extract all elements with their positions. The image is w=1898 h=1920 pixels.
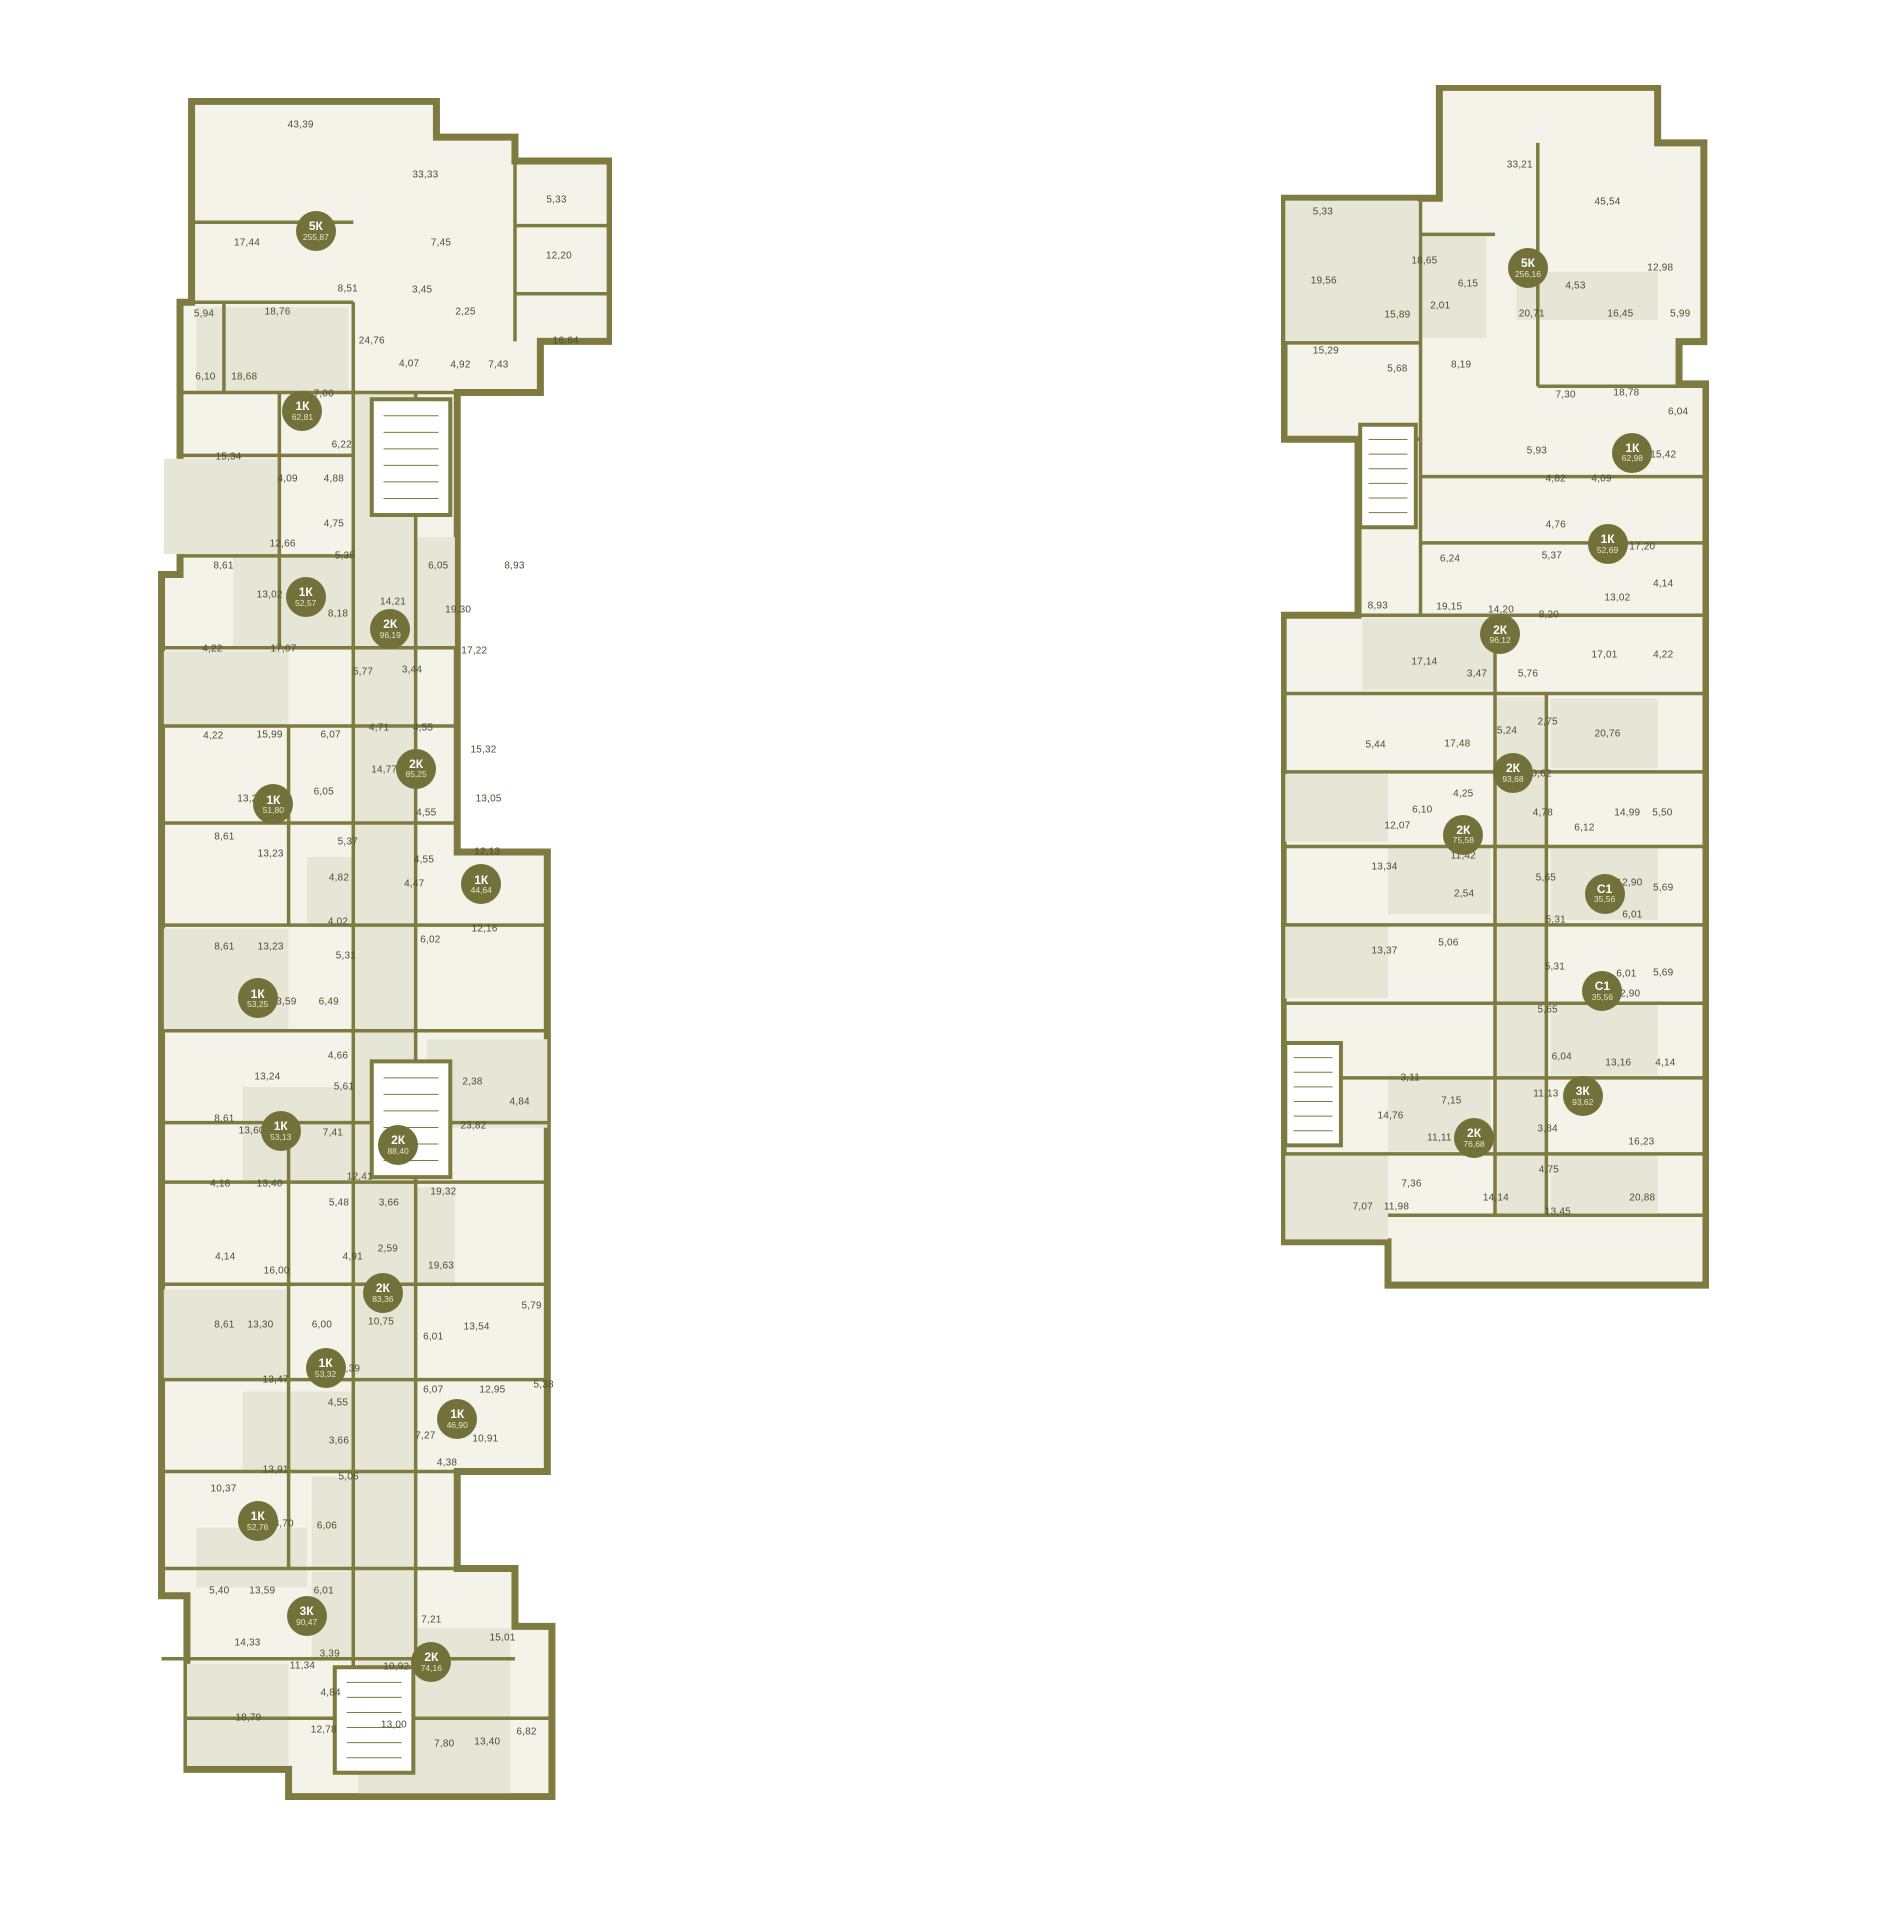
room-area-label: 15,01: [489, 1633, 515, 1644]
apartment-type: 1К: [474, 874, 488, 887]
apartment-area: 53,25: [247, 1000, 268, 1009]
room-area-label: 6,01: [314, 1585, 334, 1596]
room-tint: [1285, 925, 1388, 999]
room-area-label: 17,22: [461, 646, 487, 657]
room-area-label: 4,75: [324, 518, 344, 529]
apartment-badge: С135,56: [1582, 971, 1622, 1011]
apartment-area: 51,80: [263, 806, 284, 815]
room-area-label: 5,79: [521, 1301, 541, 1312]
room-area-label: 7,07: [1353, 1201, 1373, 1212]
room-area-label: 13,24: [254, 1071, 280, 1082]
room-area-label: 4,82: [329, 872, 349, 883]
room-area-label: 7,15: [1441, 1095, 1461, 1106]
apartment-badge: 1К53,13: [261, 1111, 301, 1151]
room-area-label: 18,76: [264, 307, 290, 318]
room-area-label: 3,47: [1467, 669, 1487, 680]
room-area-label: 6,07: [423, 1384, 443, 1395]
room-area-label: 5,40: [209, 1585, 229, 1596]
room-area-label: 16,00: [264, 1265, 290, 1276]
room-area-label: 13,30: [247, 1320, 273, 1331]
room-area-label: 11,98: [1384, 1201, 1409, 1212]
room-tint: [164, 651, 289, 726]
room-tint: [164, 1289, 289, 1378]
apartment-badge: 5К256,16: [1508, 248, 1548, 288]
room-area-label: 18,65: [1411, 255, 1437, 266]
apartment-type: 2К: [409, 758, 423, 771]
room-area-label: 19,30: [445, 605, 471, 616]
room-area-label: 4,55: [413, 722, 433, 733]
room-area-label: 2,54: [1454, 888, 1474, 899]
apartment-type: 1К: [274, 1120, 288, 1133]
room-area-label: 4,02: [328, 916, 348, 927]
apartment-badge: 1К46,90: [437, 1399, 477, 1439]
room-area-label: 20,88: [1629, 1193, 1655, 1204]
room-area-label: 17,07: [271, 644, 297, 655]
room-area-label: 8,61: [214, 1114, 234, 1125]
room-area-label: 19,15: [1436, 601, 1462, 612]
apartment-type: 1К: [295, 400, 309, 413]
apartment-badge: 2К96,19: [370, 609, 410, 649]
room-area-label: 12,07: [1384, 821, 1410, 832]
room-area-label: 6,04: [1668, 406, 1688, 417]
room-area-label: 6,01: [1616, 969, 1636, 980]
apartment-type: 1К: [251, 988, 265, 1001]
apartment-type: 3К: [1576, 1085, 1590, 1098]
room-tint: [1551, 1003, 1658, 1075]
apartment-type: 1К: [1625, 442, 1639, 455]
room-area-label: 11,13: [1533, 1088, 1558, 1099]
room-area-label: 4,14: [1653, 578, 1673, 589]
room-area-label: 4,22: [202, 644, 222, 655]
apartment-area: 255,87: [303, 233, 329, 242]
apartment-badge: 2К75,58: [1443, 815, 1483, 855]
room-area-label: 4,55: [416, 807, 436, 818]
room-area-label: 17,20: [1629, 541, 1655, 552]
room-area-label: 4,14: [215, 1252, 235, 1263]
apartment-badge: 2К96,12: [1480, 614, 1520, 654]
apartment-area: 74,16: [421, 1664, 442, 1673]
room-area-label: 6,24: [1440, 553, 1460, 564]
apartment-type: 5К: [309, 220, 323, 233]
apartment-badge: 1К44,64: [461, 864, 501, 904]
apartment-area: 53,13: [270, 1133, 291, 1142]
room-area-label: 3,45: [412, 285, 432, 296]
room-area-label: 5,68: [1387, 364, 1407, 375]
room-area-label: 10,92: [383, 1662, 409, 1673]
room-area-label: 6,22: [332, 440, 352, 451]
room-area-label: 20,71: [1519, 308, 1545, 319]
apartment-area: 96,12: [1489, 636, 1510, 645]
room-area-label: 4,78: [1533, 807, 1553, 818]
apartment-type: 1К: [1601, 533, 1615, 546]
apartment-type: 1К: [319, 1357, 333, 1370]
apartment-badge: 2К76,68: [1454, 1118, 1494, 1158]
room-area-label: 11,11: [1427, 1133, 1452, 1144]
room-area-label: 3,44: [402, 664, 422, 675]
room-area-label: 13,02: [1604, 593, 1630, 604]
room-area-label: 3,66: [379, 1197, 399, 1208]
apartment-type: 3К: [300, 1605, 314, 1618]
room-area-label: 5,48: [329, 1197, 349, 1208]
apartment-area: 96,19: [380, 631, 401, 640]
room-area-label: 5,93: [1527, 446, 1547, 457]
apartment-badge: 1К62,98: [1612, 433, 1652, 473]
room-area-label: 7,36: [1401, 1178, 1421, 1189]
apartment-area: 85,25: [405, 770, 426, 779]
room-area-label: 4,88: [324, 474, 344, 485]
room-area-label: 5,31: [336, 950, 356, 961]
stair-core: [372, 399, 451, 515]
room-area-label: 14,14: [1483, 1193, 1509, 1204]
room-area-label: 6,10: [1412, 805, 1432, 816]
apartment-type: 2К: [1493, 624, 1507, 637]
room-area-label: 18,79: [235, 1713, 261, 1724]
apartment-badge: 2К93,68: [1493, 753, 1533, 793]
room-area-label: 4,84: [321, 1687, 341, 1698]
room-area-label: 5,69: [1653, 882, 1673, 893]
room-area-label: 5,33: [546, 195, 566, 206]
apartment-badge: 2К88,40: [378, 1125, 418, 1165]
room-area-label: 5,69: [1653, 968, 1673, 979]
room-area-label: 19,56: [1311, 276, 1337, 287]
room-area-label: 6,01: [423, 1332, 443, 1343]
room-area-label: 19,32: [430, 1187, 456, 1198]
room-area-label: 5,06: [1438, 937, 1458, 948]
room-area-label: 15,29: [1313, 346, 1339, 357]
room-area-label: 6,82: [516, 1726, 536, 1737]
apartment-area: 52,57: [295, 599, 316, 608]
apartment-type: 2К: [424, 1651, 438, 1664]
room-area-label: 8,19: [1451, 359, 1471, 370]
room-area-label: 4,25: [1453, 788, 1473, 799]
room-area-label: 5,31: [1545, 962, 1565, 973]
apartment-badge: 5К255,87: [296, 211, 336, 251]
room-area-label: 16,64: [553, 336, 579, 347]
apartment-type: 2К: [1467, 1127, 1481, 1140]
room-area-label: 5,38: [533, 1379, 553, 1390]
room-area-label: 10,37: [210, 1483, 236, 1494]
stair-core: [1285, 1043, 1341, 1145]
room-area-label: 13,47: [263, 1374, 289, 1385]
room-area-label: 8,51: [338, 283, 358, 294]
room-area-label: 4,09: [1591, 474, 1611, 485]
stair-core: [1360, 425, 1416, 527]
apartment-badge: 1К52,76: [238, 1501, 278, 1541]
apartment-area: 93,62: [1572, 1098, 1593, 1107]
room-area-label: 17,48: [1444, 739, 1470, 750]
room-area-label: 7,41: [323, 1127, 343, 1138]
room-area-label: 8,61: [214, 831, 234, 842]
room-tint: [1551, 1155, 1658, 1213]
room-area-label: 14,76: [1378, 1111, 1404, 1122]
apartment-area: 62,81: [292, 413, 313, 422]
room-tint: [1285, 774, 1388, 841]
room-area-label: 5,33: [1313, 206, 1333, 217]
room-area-label: 8,93: [504, 561, 524, 572]
room-area-label: 4,92: [450, 360, 470, 371]
room-area-label: 4,66: [328, 1051, 348, 1062]
room-area-label: 2,38: [462, 1076, 482, 1087]
room-area-label: 8,18: [328, 608, 348, 619]
room-area-label: 4,18: [210, 1178, 230, 1189]
room-area-label: 2,75: [1538, 717, 1558, 728]
room-area-label: 5,44: [1365, 740, 1385, 751]
room-area-label: 6,10: [195, 372, 215, 383]
apartment-type: 1К: [450, 1408, 464, 1421]
building-section-left: 43,3933,335,3317,447,4512,208,513,452,25…: [150, 98, 612, 1800]
apartment-badge: 1К52,57: [286, 577, 326, 617]
room-area-label: 5,65: [1536, 872, 1556, 883]
apartment-type: 1К: [299, 586, 313, 599]
room-area-label: 23,82: [460, 1121, 486, 1132]
room-area-label: 13,34: [1372, 862, 1398, 873]
apartment-type: 1К: [251, 1510, 265, 1523]
room-area-label: 8,61: [213, 561, 233, 572]
apartment-type: 2К: [1456, 824, 1470, 837]
room-area-label: 45,54: [1595, 196, 1621, 207]
room-area-label: 4,14: [1655, 1058, 1675, 1069]
room-tint: [307, 857, 413, 923]
apartment-type: С1: [1597, 883, 1612, 896]
apartment-badge: 1К53,25: [238, 978, 278, 1018]
room-area-label: 15,89: [1384, 310, 1410, 321]
room-area-label: 15,32: [471, 744, 497, 755]
room-area-label: 6,05: [428, 561, 448, 572]
room-area-label: 11,34: [290, 1660, 315, 1671]
room-tint: [1285, 1155, 1388, 1239]
room-area-label: 6,49: [319, 996, 339, 1007]
room-area-label: 6,02: [420, 935, 440, 946]
room-area-label: 5,65: [1538, 1005, 1558, 1016]
room-area-label: 17,01: [1592, 649, 1618, 660]
apartment-area: 76,68: [1463, 1140, 1484, 1149]
room-area-label: 8,93: [1368, 600, 1388, 611]
room-area-label: 3,11: [1400, 1072, 1420, 1083]
apartment-type: 1К: [266, 794, 280, 807]
room-area-label: 13,05: [476, 794, 502, 805]
room-area-label: 13,40: [474, 1737, 500, 1748]
apartment-area: 90,47: [296, 1618, 317, 1627]
room-area-label: 4,07: [399, 358, 419, 369]
room-area-label: 6,04: [1552, 1052, 1572, 1063]
room-area-label: 4,71: [369, 722, 389, 733]
apartment-badge: 1К51,80: [253, 784, 293, 824]
apartment-badge: 2К85,25: [396, 749, 436, 789]
room-area-label: 4,84: [509, 1097, 529, 1108]
room-area-label: 4,22: [203, 731, 223, 742]
building-section-right: 33,2145,545,3319,5618,6512,984,536,152,0…: [1281, 85, 1709, 1290]
apartment-area: 35,56: [1594, 895, 1615, 904]
apartment-badge: 2К83,36: [363, 1273, 403, 1313]
room-area-label: 6,07: [321, 729, 341, 740]
room-area-label: 13,45: [1545, 1206, 1571, 1217]
room-area-label: 12,16: [471, 923, 497, 934]
room-area-label: 4,91: [343, 1252, 363, 1263]
room-area-label: 7,27: [415, 1430, 435, 1441]
room-area-label: 13,16: [1605, 1058, 1631, 1069]
apartment-badge: С135,56: [1585, 874, 1625, 914]
room-area-label: 5,94: [194, 309, 214, 320]
room-area-label: 33,33: [412, 169, 438, 180]
room-area-label: 15,42: [1650, 449, 1676, 460]
room-area-label: 5,76: [1518, 669, 1538, 680]
room-area-label: 4,55: [328, 1398, 348, 1409]
apartment-badge: 2К74,16: [411, 1642, 451, 1682]
apartment-area: 46,90: [447, 1421, 468, 1430]
room-area-label: 5,06: [339, 1471, 359, 1482]
room-area-label: 5,99: [1670, 308, 1690, 319]
room-area-label: 10,91: [472, 1434, 498, 1445]
room-area-label: 15,34: [216, 452, 242, 463]
apartment-area: 35,56: [1592, 993, 1613, 1002]
room-area-label: 5,61: [334, 1081, 354, 1092]
room-area-label: 10,75: [368, 1316, 394, 1327]
room-area-label: 12,41: [347, 1172, 373, 1183]
room-area-label: 4,82: [1546, 474, 1566, 485]
apartment-area: 83,36: [372, 1295, 393, 1304]
room-area-label: 6,15: [1458, 278, 1478, 289]
room-area-label: 6,05: [314, 787, 334, 798]
apartment-badge: 1К53,32: [306, 1348, 346, 1388]
floor-plan-page: 43,3933,335,3317,447,4512,208,513,452,25…: [0, 0, 1898, 1920]
apartment-badge: 1К62,81: [282, 391, 322, 431]
room-area-label: 18,68: [231, 372, 257, 383]
room-area-label: 3,84: [1538, 1123, 1558, 1134]
room-area-label: 12,20: [546, 251, 572, 262]
room-area-label: 14,77: [371, 765, 397, 776]
room-area-label: 17,44: [234, 237, 260, 248]
room-area-label: 4,09: [278, 474, 298, 485]
apartment-badge: 1К52,69: [1588, 524, 1628, 564]
room-area-label: 5,77: [353, 666, 373, 677]
room-area-label: 14,99: [1614, 807, 1640, 818]
room-area-label: 5,37: [338, 836, 358, 847]
room-area-label: 6,01: [1622, 910, 1642, 921]
room-area-label: 33,21: [1507, 159, 1533, 170]
room-area-label: 8,61: [214, 1320, 234, 1331]
room-area-label: 13,59: [249, 1585, 275, 1596]
room-area-label: 13,40: [257, 1178, 283, 1189]
room-area-label: 5,24: [1497, 725, 1517, 736]
room-area-label: 4,22: [1653, 649, 1673, 660]
room-area-label: 5,50: [1652, 807, 1672, 818]
room-area-label: 4,53: [1565, 281, 1585, 292]
apartment-type: 5К: [1521, 257, 1535, 270]
room-area-label: 13,91: [263, 1464, 289, 1475]
room-area-label: 17,14: [1411, 657, 1437, 668]
room-area-label: 43,39: [288, 120, 314, 131]
room-area-label: 20,76: [1595, 729, 1621, 740]
room-area-label: 7,43: [488, 360, 508, 371]
apartment-type: 2К: [376, 1282, 390, 1295]
apartment-area: 62,98: [1622, 454, 1643, 463]
room-area-label: 6,12: [1574, 823, 1594, 834]
room-area-label: 12,98: [1647, 263, 1673, 274]
room-area-label: 7,45: [431, 237, 451, 248]
room-area-label: 19,63: [428, 1260, 454, 1271]
room-area-label: 4,75: [1539, 1164, 1559, 1175]
room-area-label: 5,31: [1546, 915, 1566, 926]
room-area-label: 16,45: [1607, 308, 1633, 319]
apartment-type: 2К: [391, 1134, 405, 1147]
building-section-right-walls: [1281, 85, 1709, 1290]
room-area-label: 4,76: [1546, 519, 1566, 530]
room-area-label: 4,38: [437, 1458, 457, 1469]
room-tint: [196, 307, 348, 392]
room-area-label: 8,20: [1539, 610, 1559, 621]
room-area-label: 2,59: [378, 1243, 398, 1254]
room-area-label: 12,95: [479, 1384, 505, 1395]
room-area-label: 8,61: [214, 942, 234, 953]
room-area-label: 4,47: [404, 879, 424, 890]
apartment-type: 2К: [383, 618, 397, 631]
room-area-label: 12,78: [311, 1725, 337, 1736]
apartment-type: 2К: [1506, 762, 1520, 775]
apartment-area: 53,32: [315, 1370, 336, 1379]
room-area-label: 6,00: [312, 1320, 332, 1331]
room-area-label: 2,01: [1430, 300, 1450, 311]
apartment-area: 52,76: [247, 1523, 268, 1532]
room-area-label: 18,78: [1613, 388, 1639, 399]
apartment-area: 52,69: [1597, 546, 1618, 555]
room-area-label: 14,21: [380, 596, 406, 607]
room-area-label: 4,55: [414, 855, 434, 866]
room-area-label: 15,99: [257, 729, 283, 740]
room-area-label: 16,23: [1628, 1136, 1654, 1147]
room-area-label: 5,35: [335, 550, 355, 561]
room-area-label: 3,39: [320, 1648, 340, 1659]
room-tint: [164, 459, 279, 554]
room-area-label: 5,37: [1542, 551, 1562, 562]
room-area-label: 6,06: [317, 1520, 337, 1531]
apartment-area: 75,58: [1453, 836, 1474, 845]
apartment-badge: 3К93,62: [1563, 1076, 1603, 1116]
room-area-label: 7,80: [434, 1738, 454, 1749]
room-area-label: 13,54: [464, 1321, 490, 1332]
apartment-type: С1: [1595, 980, 1610, 993]
room-area-label: 14,33: [234, 1638, 260, 1649]
apartment-area: 44,64: [471, 886, 492, 895]
room-area-label: 7,21: [421, 1614, 441, 1625]
room-area-label: 7,30: [1555, 389, 1575, 400]
room-area-label: 13,37: [1372, 946, 1398, 957]
room-area-label: 12,66: [270, 538, 296, 549]
apartment-area: 93,68: [1502, 775, 1523, 784]
room-area-label: 13,02: [257, 589, 283, 600]
room-area-label: 24,76: [359, 336, 385, 347]
apartment-area: 256,16: [1515, 270, 1541, 279]
apartment-area: 88,40: [387, 1147, 408, 1156]
apartment-badge: 3К90,47: [287, 1596, 327, 1636]
room-area-label: 2,25: [455, 307, 475, 318]
room-area-label: 12,13: [474, 846, 500, 857]
room-area-label: 3,66: [329, 1435, 349, 1446]
room-area-label: 13,23: [258, 942, 284, 953]
room-area-label: 13,23: [258, 848, 284, 859]
room-area-label: 13,00: [381, 1720, 407, 1731]
